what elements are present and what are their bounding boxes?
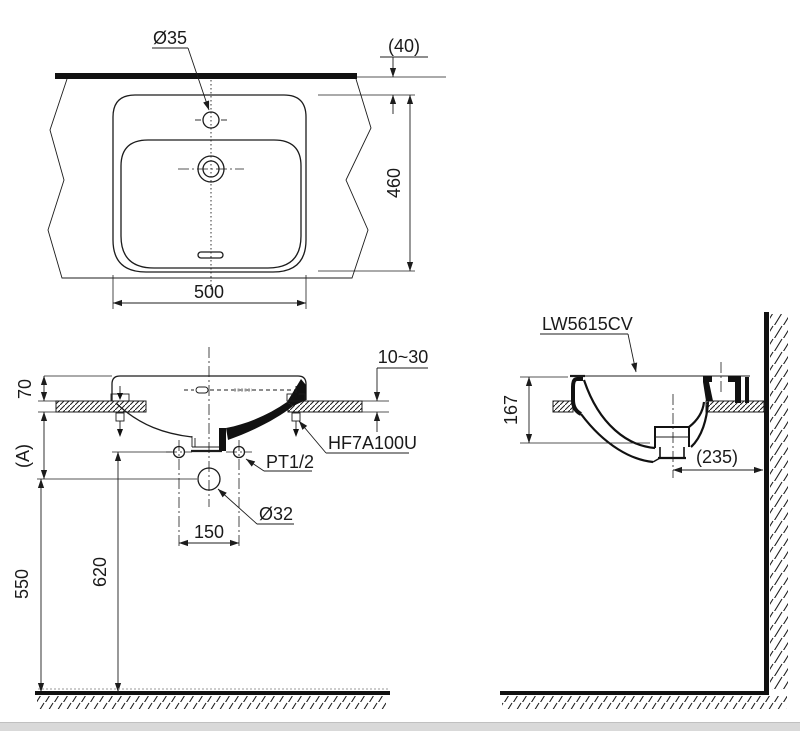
drain-height-label: 550: [12, 569, 32, 599]
dim-supply-height: 620: [90, 452, 172, 692]
supply-spacing-label: 150: [194, 522, 224, 542]
bracket-model-label: HF7A100U: [328, 433, 417, 453]
bowl-cut-right: [226, 402, 293, 440]
label-supply-thread: PT1/2: [246, 452, 314, 472]
wall-line: [55, 73, 357, 79]
dim-rim-height: 70: [15, 376, 112, 401]
overflow-slot-front: [196, 387, 208, 393]
window-edge-strip: [0, 722, 800, 731]
label-bracket-model: HF7A100U: [299, 421, 417, 453]
dim-basin-width: 500: [113, 275, 306, 309]
dim-basin-depth: 460: [318, 95, 415, 271]
dim-supply-spacing: 150: [179, 522, 239, 543]
wall-hatch: [770, 314, 788, 690]
technical-drawing-page: Ø35 (40) 460 500: [0, 0, 800, 731]
plan-view: Ø35 (40) 460 500: [48, 28, 446, 309]
drain-hole-plan: [178, 156, 244, 182]
dim-faucet-dia: Ø35: [152, 28, 209, 110]
dim-drain-height: 550: [12, 479, 41, 692]
side-view: LW5615CV 167 (235): [500, 312, 788, 709]
drain-dia-label: Ø32: [259, 504, 293, 524]
floor-right: [500, 691, 787, 709]
front-view: 70 (A) 10~30 HF7A100U PT1/2: [12, 347, 428, 709]
basin-outer-edge: [113, 95, 306, 272]
supply-height-label: 620: [90, 557, 110, 587]
label-drain-dia: Ø32: [218, 489, 294, 524]
dim-a-label: (A): [13, 444, 33, 468]
counter-gap-label: (40): [388, 36, 420, 56]
rim-height-label: 70: [15, 379, 35, 399]
dim-a: (A): [13, 412, 197, 479]
floor-left: [35, 689, 390, 709]
basin-height-label: 167: [501, 395, 521, 425]
basin-depth-label: 460: [384, 168, 404, 198]
label-model-code: LW5615CV: [540, 314, 636, 372]
supply-thread-label: PT1/2: [266, 452, 314, 472]
model-code-label: LW5615CV: [542, 314, 633, 334]
wall-section: [764, 312, 769, 694]
dim-counter-thickness: 10~30: [377, 347, 428, 432]
overflow-slot-plan: [198, 252, 223, 258]
drain-to-wall-label: (235): [696, 447, 738, 467]
drain-trap-front: [191, 428, 226, 451]
counter-outline: [48, 79, 371, 278]
faucet-dia-label: Ø35: [153, 28, 187, 48]
counter-thickness-label: 10~30: [378, 347, 429, 367]
counter-section-left: [56, 401, 146, 412]
basin-width-label: 500: [194, 282, 224, 302]
side-counter-left: [553, 401, 573, 412]
sink-installation-drawing: Ø35 (40) 460 500: [0, 0, 800, 731]
